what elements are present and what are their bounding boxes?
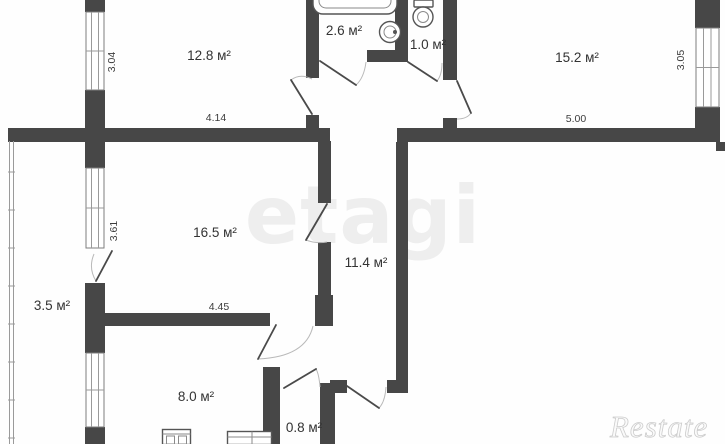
wall-segment bbox=[387, 380, 408, 393]
room-label-0-8: 0.8 м² bbox=[286, 420, 323, 435]
wall-segment bbox=[8, 128, 330, 142]
dim-3-05: 3.05 bbox=[675, 50, 687, 71]
wall-segment bbox=[320, 383, 335, 444]
room-label-11-4: 11.4 м² bbox=[345, 255, 388, 270]
stove-icon bbox=[163, 430, 191, 444]
wall-segment bbox=[318, 242, 331, 295]
balcony-glazing bbox=[8, 141, 15, 444]
wall-segment bbox=[716, 142, 725, 151]
room-label-8-0: 8.0 м² bbox=[178, 389, 215, 404]
wall-segment bbox=[306, 115, 319, 142]
wall-segment bbox=[85, 283, 105, 353]
wall-segment bbox=[85, 90, 105, 168]
kitchen-counter-icon bbox=[228, 432, 272, 444]
floor-plan-drawing: etagi bbox=[0, 0, 725, 444]
floor-plan: etagi bbox=[0, 0, 725, 444]
kitchen-door bbox=[258, 325, 313, 359]
wall-segment bbox=[318, 141, 331, 203]
room-label-1-0: 1.0 м² bbox=[410, 37, 447, 52]
wall-segment bbox=[85, 0, 105, 12]
wc-door bbox=[408, 62, 442, 81]
wall-segment bbox=[85, 427, 105, 444]
room-label-3-5: 3.5 м² bbox=[34, 298, 71, 313]
washbasin-icon bbox=[380, 22, 401, 43]
window bbox=[696, 28, 719, 107]
wall-segment bbox=[396, 142, 408, 393]
window bbox=[86, 353, 104, 427]
room-label-2-6: 2.6 м² bbox=[326, 23, 363, 38]
watermark-restate: Restate bbox=[609, 409, 708, 444]
room-label-12-8: 12.8 м² bbox=[187, 48, 231, 63]
bathtub-icon bbox=[313, 0, 397, 14]
dim-3-61: 3.61 bbox=[108, 221, 120, 242]
wall-segment bbox=[315, 295, 333, 326]
window bbox=[86, 168, 104, 248]
dim-4-45: 4.45 bbox=[209, 301, 230, 313]
storage-door bbox=[284, 369, 320, 388]
wall-segment bbox=[443, 118, 457, 142]
window bbox=[86, 12, 104, 90]
dim-3-04: 3.04 bbox=[106, 52, 118, 73]
watermark-etagi: etagi bbox=[245, 169, 481, 262]
balcony-door bbox=[91, 251, 112, 281]
bathroom-door bbox=[320, 61, 366, 85]
wall-segment bbox=[103, 313, 270, 326]
wall-segment bbox=[695, 0, 720, 28]
room-top-left-door bbox=[291, 76, 312, 114]
wall-segment bbox=[695, 107, 720, 142]
toilet-icon bbox=[413, 0, 433, 27]
room-top-right-door bbox=[457, 81, 471, 119]
room-label-16-5: 16.5 м² bbox=[193, 225, 237, 240]
entrance-door bbox=[347, 386, 386, 408]
room-label-15-2: 15.2 м² bbox=[555, 50, 599, 65]
dim-4-14: 4.14 bbox=[206, 112, 227, 124]
dim-5-00: 5.00 bbox=[566, 113, 587, 125]
